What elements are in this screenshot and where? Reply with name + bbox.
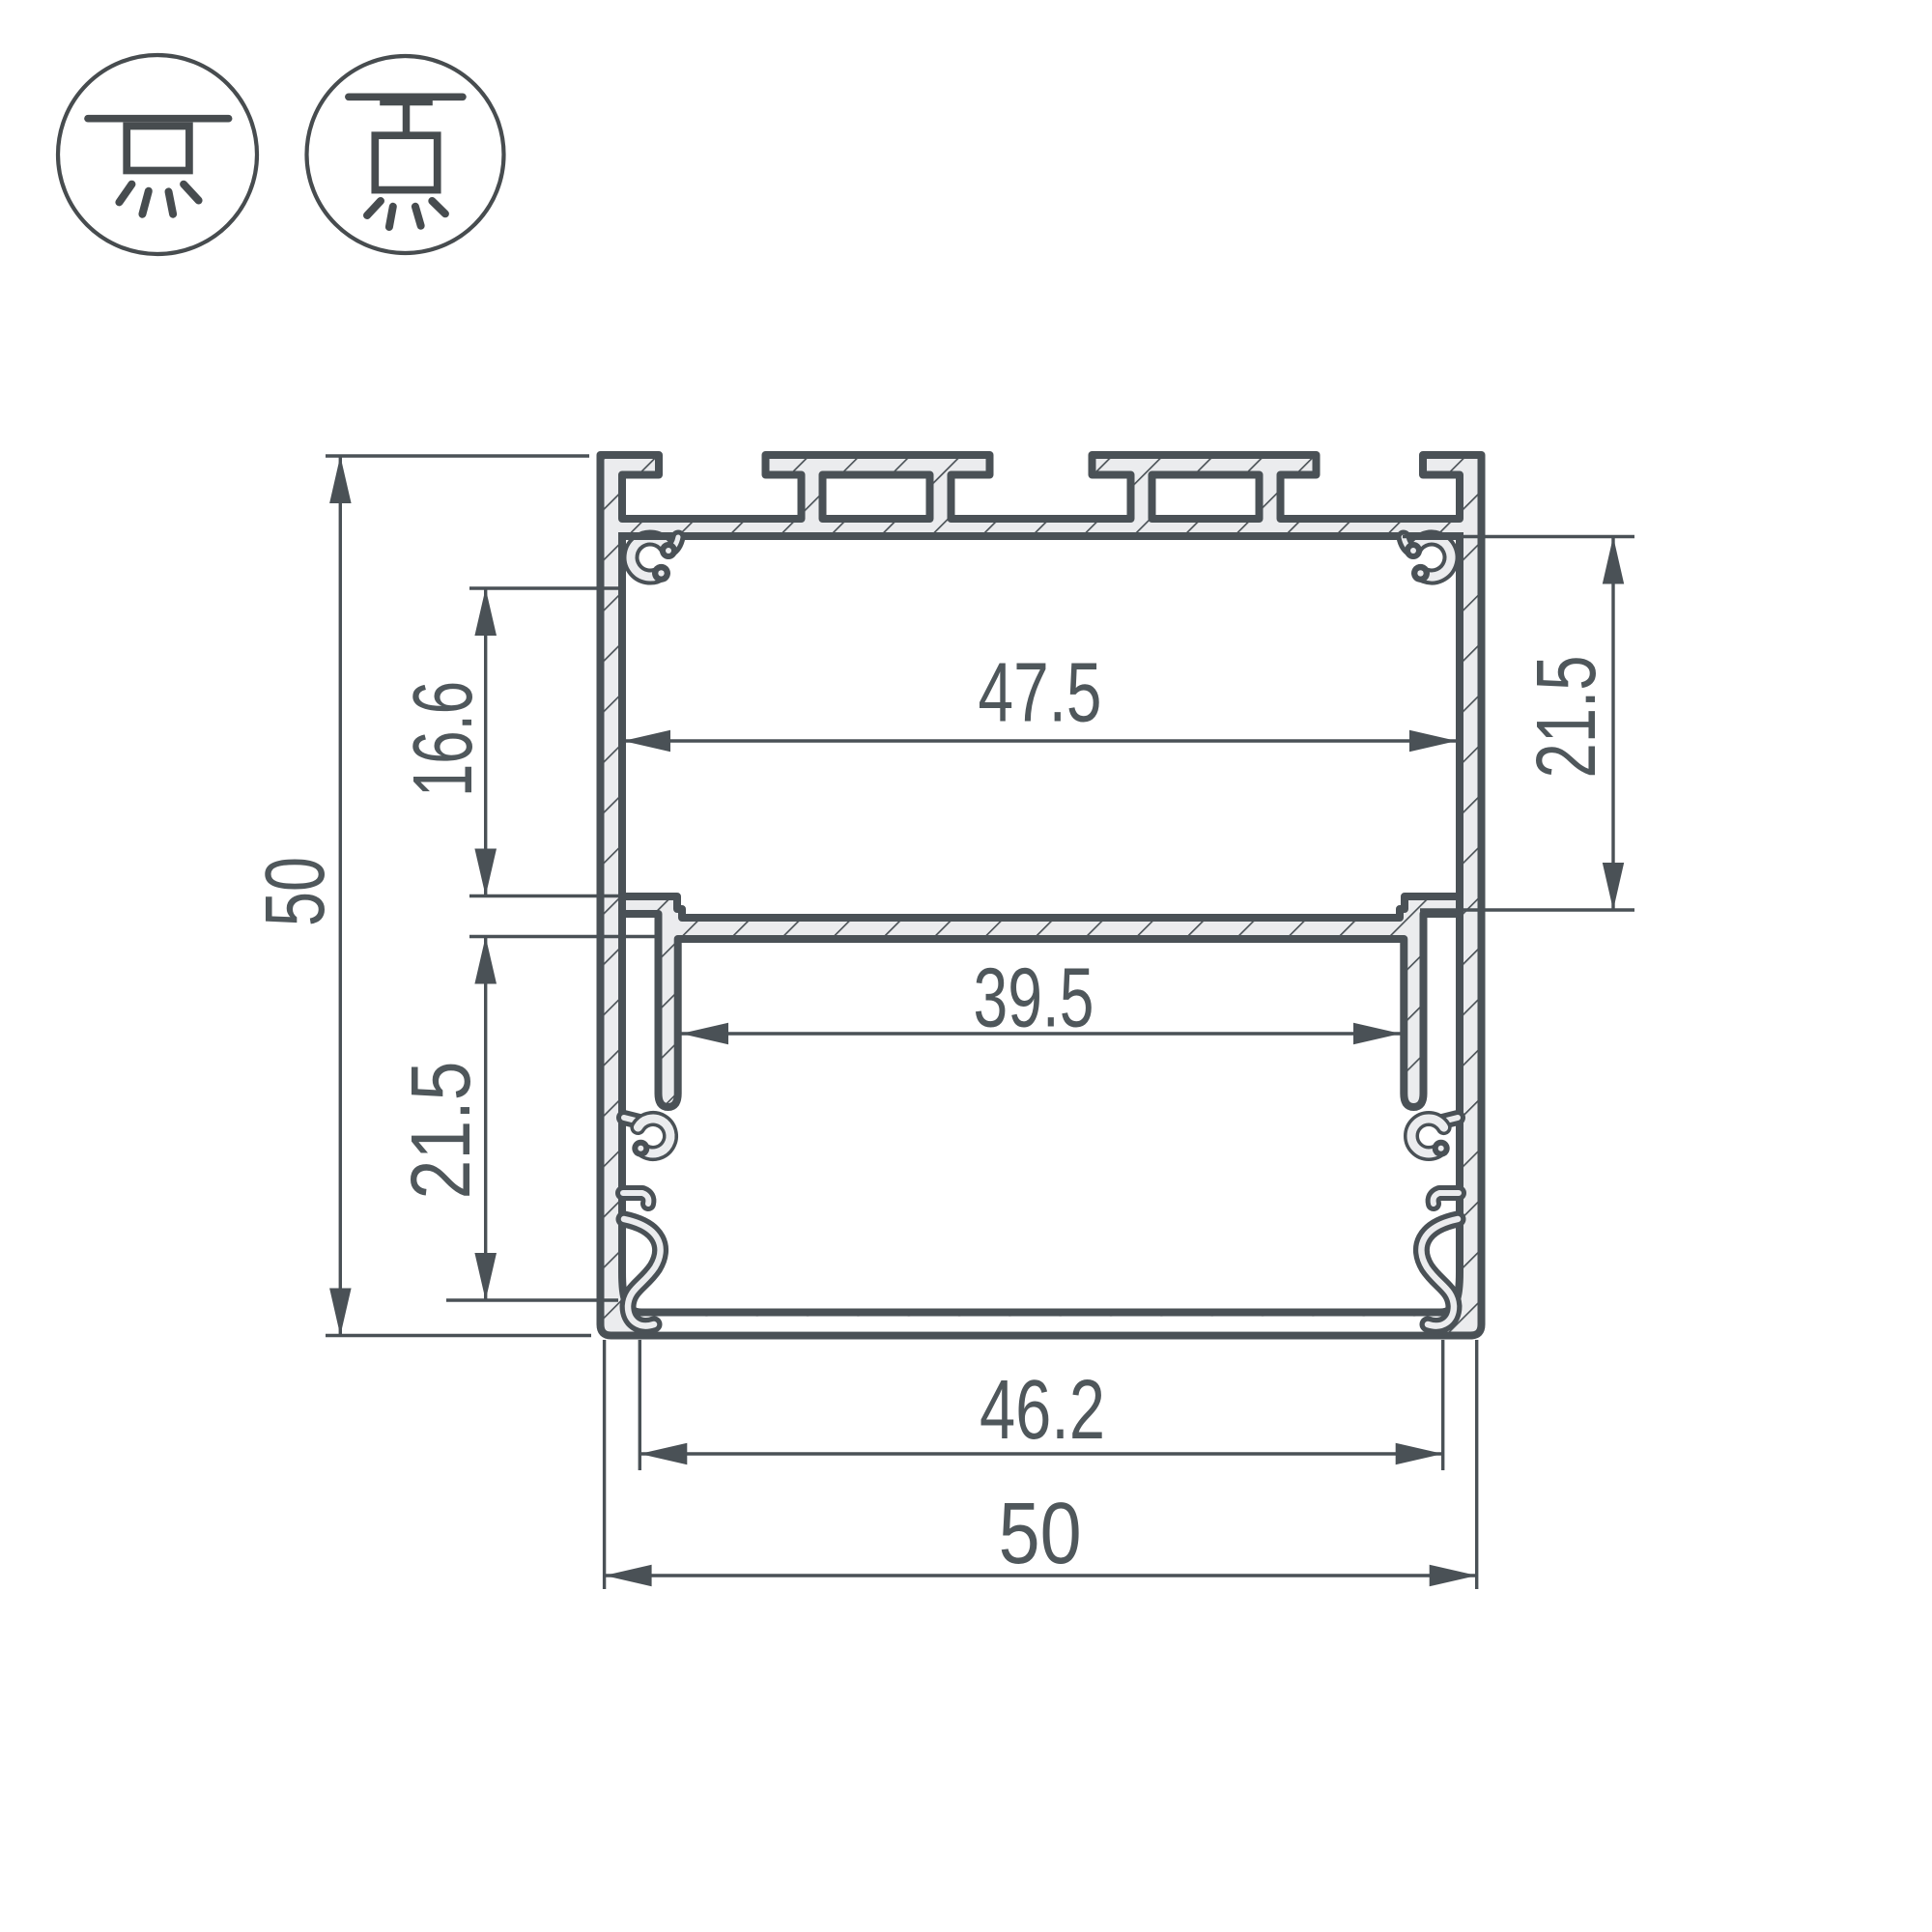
svg-text:21.5: 21.5	[1520, 656, 1613, 779]
svg-text:47.5: 47.5	[979, 645, 1102, 739]
svg-text:21.5: 21.5	[394, 1062, 488, 1200]
svg-text:46.2: 46.2	[980, 1363, 1105, 1457]
svg-text:16.6: 16.6	[396, 681, 490, 797]
svg-text:39.5: 39.5	[974, 951, 1094, 1044]
svg-text:50: 50	[248, 857, 342, 926]
svg-text:50: 50	[999, 1486, 1082, 1582]
